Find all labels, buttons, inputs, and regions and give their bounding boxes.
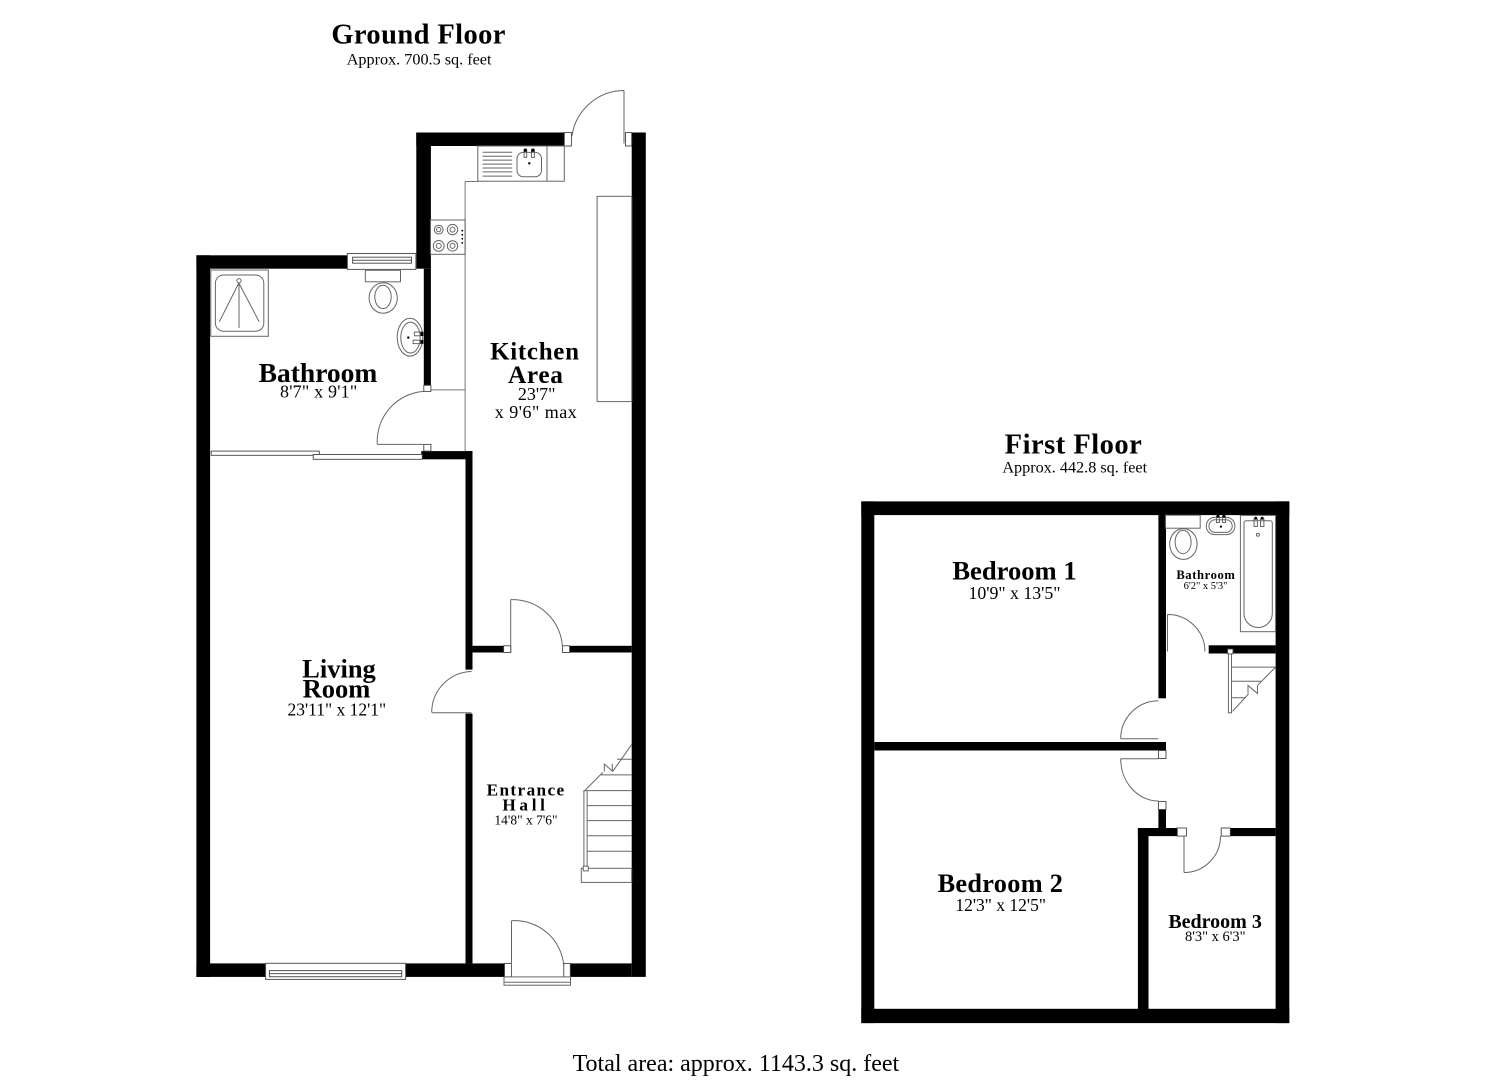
svg-text:8'7" x 9'1": 8'7" x 9'1" — [280, 382, 357, 402]
svg-text:Approx. 700.5 sq. feet: Approx. 700.5 sq. feet — [347, 51, 492, 69]
svg-text:14'8" x 7'6": 14'8" x 7'6" — [494, 813, 557, 828]
svg-text:10'9" x 13'5": 10'9" x 13'5" — [968, 583, 1060, 603]
svg-text:Approx. 442.8 sq. feet: Approx. 442.8 sq. feet — [1002, 459, 1147, 477]
svg-text:23'7": 23'7" — [518, 384, 556, 404]
svg-text:Bedroom 1: Bedroom 1 — [952, 556, 1076, 586]
svg-text:First Floor: First Floor — [1005, 429, 1143, 460]
svg-text:8'3" x 6'3": 8'3" x 6'3" — [1185, 929, 1246, 945]
svg-text:x 9'6" max: x 9'6" max — [495, 402, 578, 422]
svg-text:12'3" x 12'5": 12'3" x 12'5" — [955, 895, 1046, 915]
svg-text:23'11" x 12'1": 23'11" x 12'1" — [287, 700, 386, 720]
svg-text:6'2" x 5'3": 6'2" x 5'3" — [1184, 581, 1228, 592]
svg-text:Ground Floor: Ground Floor — [331, 20, 506, 51]
svg-text:Total area: approx. 1143.3 sq.: Total area: approx. 1143.3 sq. feet — [573, 1051, 900, 1077]
svg-text:Bedroom 2: Bedroom 2 — [938, 869, 1064, 898]
